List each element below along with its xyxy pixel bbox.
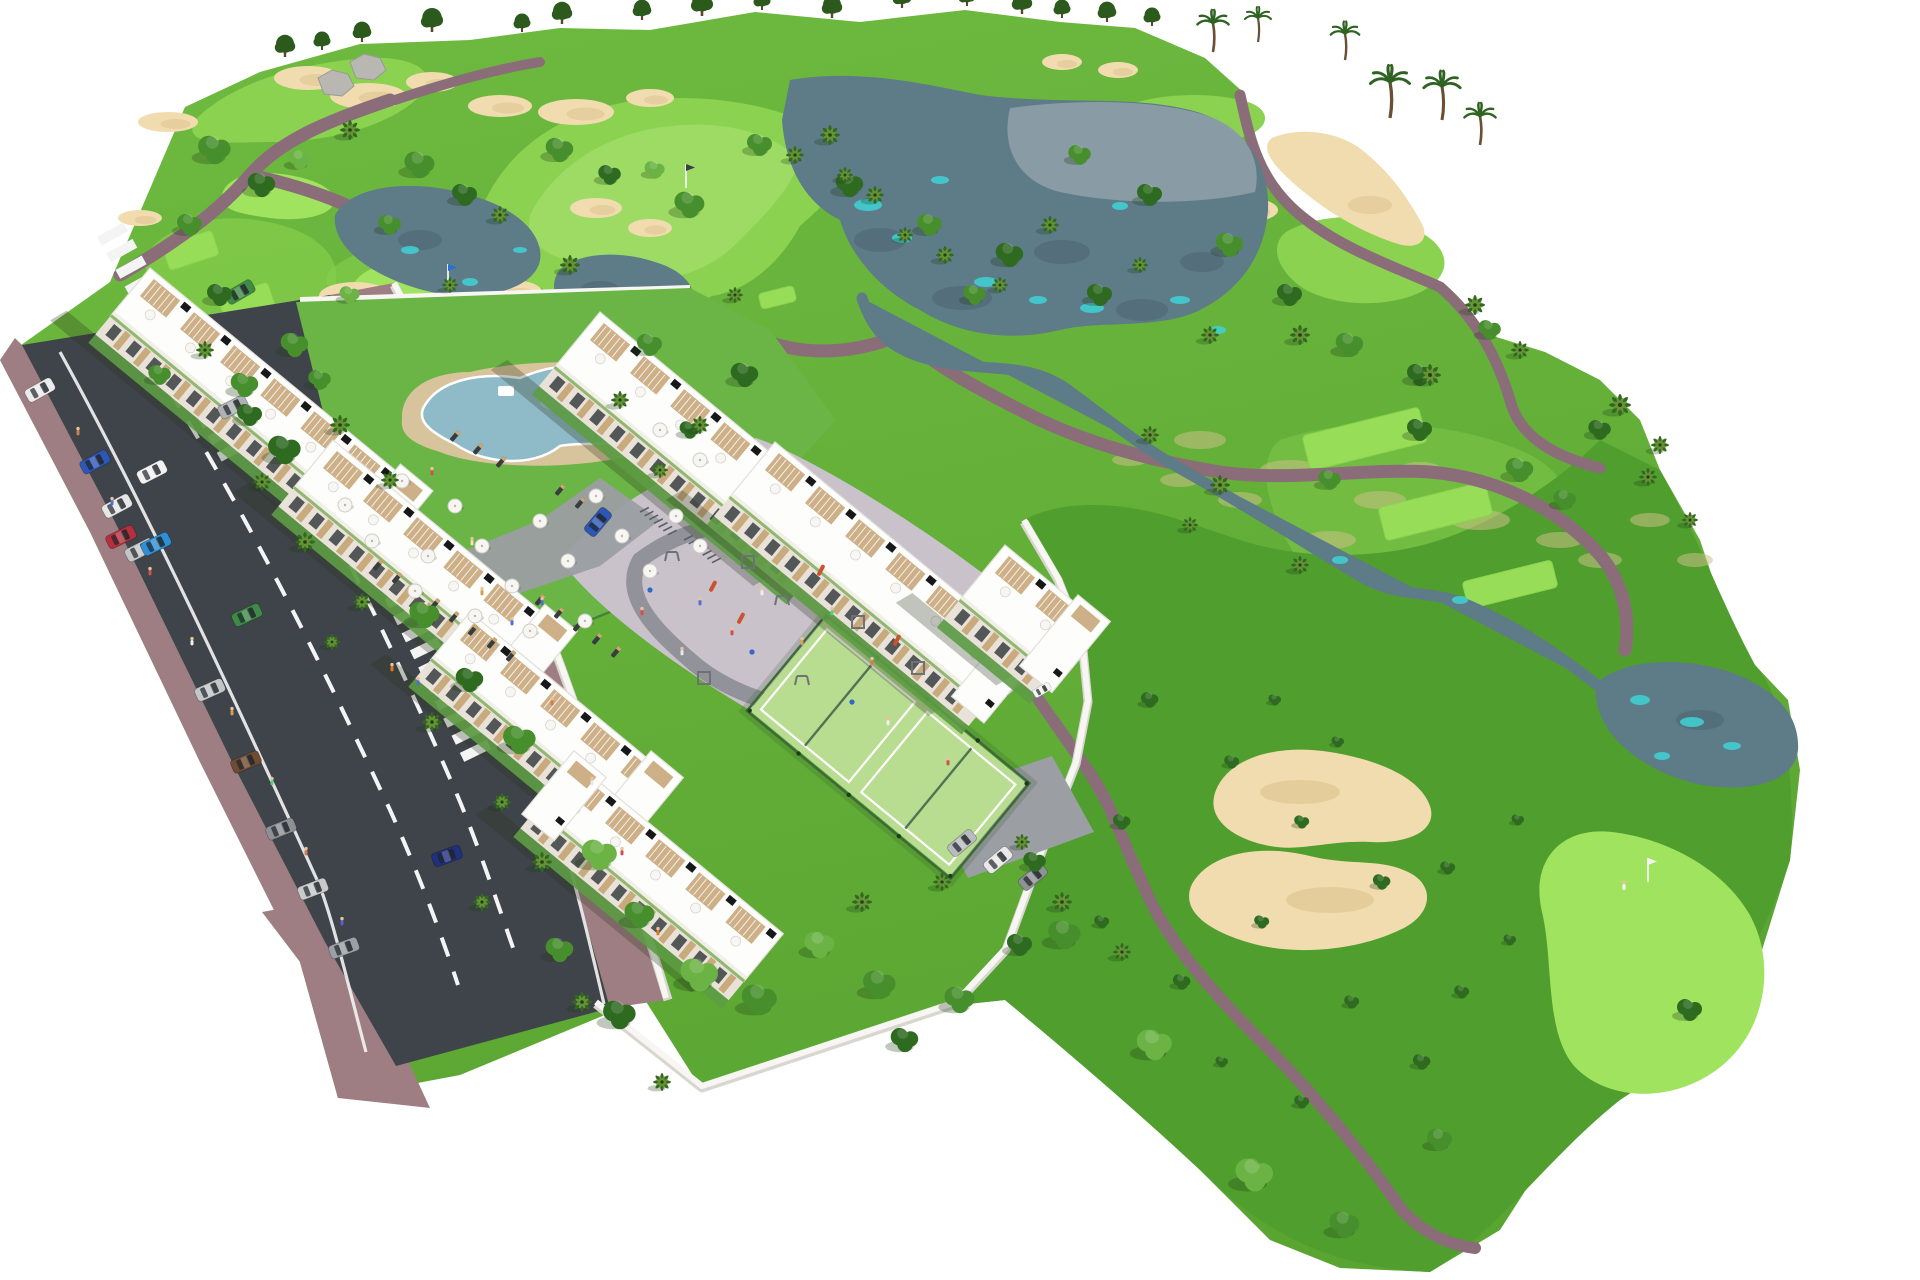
person <box>640 607 643 616</box>
person <box>870 657 873 666</box>
horizon-tree-icon <box>1098 2 1117 22</box>
shallow-water-patch <box>401 246 419 254</box>
dry-grass-patch <box>1630 513 1670 527</box>
horizon-tree-icon <box>1012 0 1032 14</box>
person <box>946 757 949 766</box>
person <box>550 697 553 706</box>
horizon-palm-icon <box>1464 103 1495 145</box>
sand-bunker <box>570 198 622 218</box>
shallow-water-patch <box>1170 296 1190 304</box>
sand-bunker <box>118 210 162 226</box>
sand-bunker <box>468 95 532 117</box>
golfer <box>1622 881 1626 890</box>
shallow-water-patch <box>1332 556 1348 564</box>
horizon-tree-icon <box>691 0 713 16</box>
shallow-water-patch <box>1112 202 1128 210</box>
person <box>230 707 233 716</box>
water-reflection <box>1116 299 1168 321</box>
horizon-palm-icon <box>1197 10 1228 52</box>
horizon-tree-icon <box>353 22 372 42</box>
horizon-tree-icon <box>822 0 842 18</box>
shallow-water-patch <box>1680 717 1704 727</box>
dry-grass-patch <box>1174 431 1226 449</box>
person <box>760 587 763 596</box>
horizon-tree-icon <box>893 0 912 8</box>
tree-icon <box>885 1028 918 1052</box>
sand-bunker <box>626 89 674 107</box>
person <box>620 847 623 856</box>
person <box>800 637 803 646</box>
horizon-palm-icon <box>1245 7 1271 42</box>
horizon-palm-icon <box>1371 66 1410 119</box>
playground-spring-icon <box>749 649 754 654</box>
person <box>270 777 273 786</box>
horizon-tree-icon <box>633 0 652 20</box>
horizon-tree-icon <box>552 2 572 24</box>
person <box>510 617 513 626</box>
shallow-water-patch <box>513 247 527 253</box>
person <box>430 467 433 476</box>
person <box>656 927 659 936</box>
person <box>148 567 151 576</box>
horizon-tree-icon <box>514 14 531 33</box>
sand-bunker <box>1098 62 1138 78</box>
pool-platform <box>498 386 514 396</box>
horizon-tree-icon <box>754 0 771 10</box>
person <box>480 587 483 596</box>
shallow-water-patch <box>462 278 478 286</box>
person <box>416 677 419 686</box>
sand-bunker <box>1042 54 1082 70</box>
playground-spring-icon <box>647 587 652 592</box>
horizon-palm-icon <box>1331 22 1360 61</box>
person <box>470 537 473 546</box>
shallow-water-patch <box>1029 296 1047 304</box>
render-stage: Aerial 3D architectural rendering of a w… <box>0 0 1920 1280</box>
person <box>830 607 833 616</box>
person <box>76 427 79 436</box>
shallow-water-patch <box>931 176 949 184</box>
dry-grass-patch <box>1677 553 1713 567</box>
person <box>698 597 701 606</box>
sand-bunker <box>628 219 672 237</box>
person <box>886 717 889 726</box>
person <box>680 647 683 656</box>
person <box>340 917 343 926</box>
person <box>540 597 543 606</box>
person <box>110 497 113 506</box>
horizon-tree-icon <box>1054 0 1071 18</box>
shallow-water-patch <box>1723 742 1741 750</box>
sand-bunker <box>138 112 198 132</box>
horizon-tree-icon <box>1144 8 1161 27</box>
shallow-water-patch <box>1654 752 1670 760</box>
person <box>730 627 733 636</box>
horizon-tree-icon <box>421 8 443 32</box>
person <box>590 777 593 786</box>
horizon-palm-icon <box>1424 71 1460 120</box>
horizon-tree-icon <box>275 35 295 57</box>
playground-spring-icon <box>849 699 854 704</box>
person <box>390 663 393 672</box>
person <box>190 637 193 646</box>
sand-bunker <box>538 99 614 125</box>
masterplan-render <box>0 0 1920 1280</box>
shallow-water-patch <box>1630 695 1650 705</box>
horizon-tree-icon <box>314 32 331 51</box>
person <box>304 847 307 856</box>
horizon-tree-icon <box>959 0 976 6</box>
palm-tree-icon <box>648 1073 671 1091</box>
water-reflection <box>1034 240 1090 264</box>
shallow-water-patch <box>1452 596 1468 604</box>
